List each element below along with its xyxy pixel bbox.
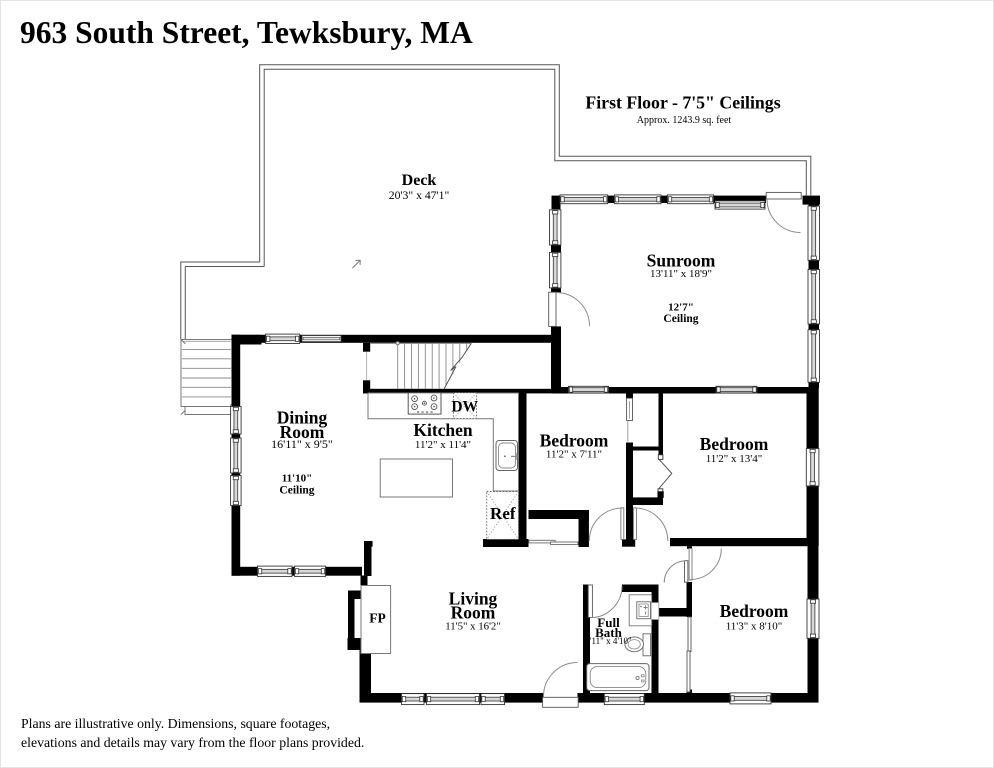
svg-text:Kitchen: Kitchen (413, 420, 473, 440)
svg-text:16'11" x 9'5": 16'11" x 9'5" (271, 437, 333, 451)
svg-text:Ceiling: Ceiling (279, 485, 314, 497)
svg-text:Bedroom: Bedroom (700, 434, 769, 454)
svg-text:Approx. 1243.9 sq. feet: Approx. 1243.9 sq. feet (637, 115, 732, 126)
svg-text:12'7": 12'7" (668, 302, 694, 314)
svg-text:11'2" x 13'4": 11'2" x 13'4" (706, 453, 763, 465)
svg-text:7'11" x 4'10": 7'11" x 4'10" (585, 636, 632, 646)
svg-text:11'3" x 8'10": 11'3" x 8'10" (726, 621, 783, 633)
svg-text:DW: DW (451, 398, 478, 415)
svg-text:elevations and details may var: elevations and details may vary from the… (21, 735, 364, 750)
svg-text:11'2" x 11'4": 11'2" x 11'4" (415, 439, 471, 451)
svg-text:Plans are illustrative only. D: Plans are illustrative only. Dimensions,… (21, 716, 330, 731)
svg-text:Ref: Ref (490, 504, 516, 523)
svg-text:Room: Room (451, 603, 496, 623)
svg-text:First Floor - 7'5" Ceilings: First Floor - 7'5" Ceilings (585, 93, 780, 113)
svg-text:11'10": 11'10" (282, 473, 313, 485)
svg-text:Bedroom: Bedroom (720, 601, 789, 621)
svg-text:963 South Street, Tewksbury, M: 963 South Street, Tewksbury, MA (20, 15, 473, 50)
svg-text:20'3" x 47'1": 20'3" x 47'1" (389, 189, 450, 202)
svg-text:13'11" x 18'9": 13'11" x 18'9" (650, 268, 712, 280)
svg-text:FP: FP (369, 611, 386, 626)
svg-text:Deck: Deck (402, 172, 437, 189)
svg-text:Ceiling: Ceiling (663, 313, 698, 325)
svg-text:11'2" x 7'11": 11'2" x 7'11" (546, 448, 602, 460)
svg-text:11'5" x 16'2": 11'5" x 16'2" (445, 621, 501, 633)
